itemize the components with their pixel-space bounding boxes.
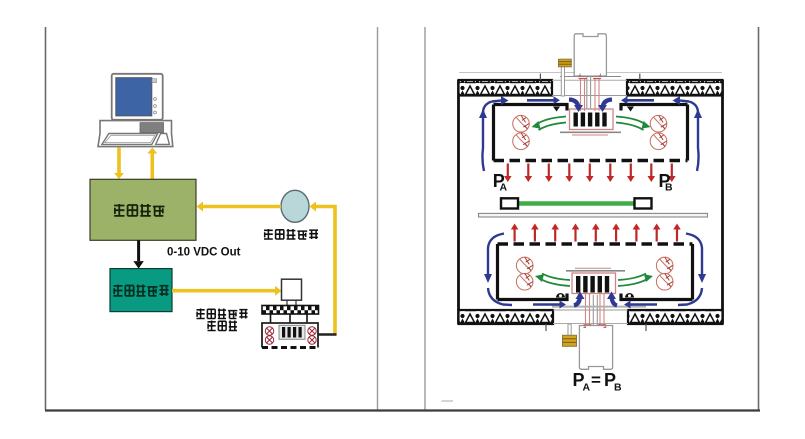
svg-text:B: B xyxy=(614,382,622,394)
svg-text:A: A xyxy=(583,382,591,394)
svg-text:A: A xyxy=(500,182,508,194)
svg-text:=: = xyxy=(591,371,601,390)
svg-text:B: B xyxy=(665,182,673,194)
svg-text:0-10 VDC Out: 0-10 VDC Out xyxy=(167,247,241,259)
